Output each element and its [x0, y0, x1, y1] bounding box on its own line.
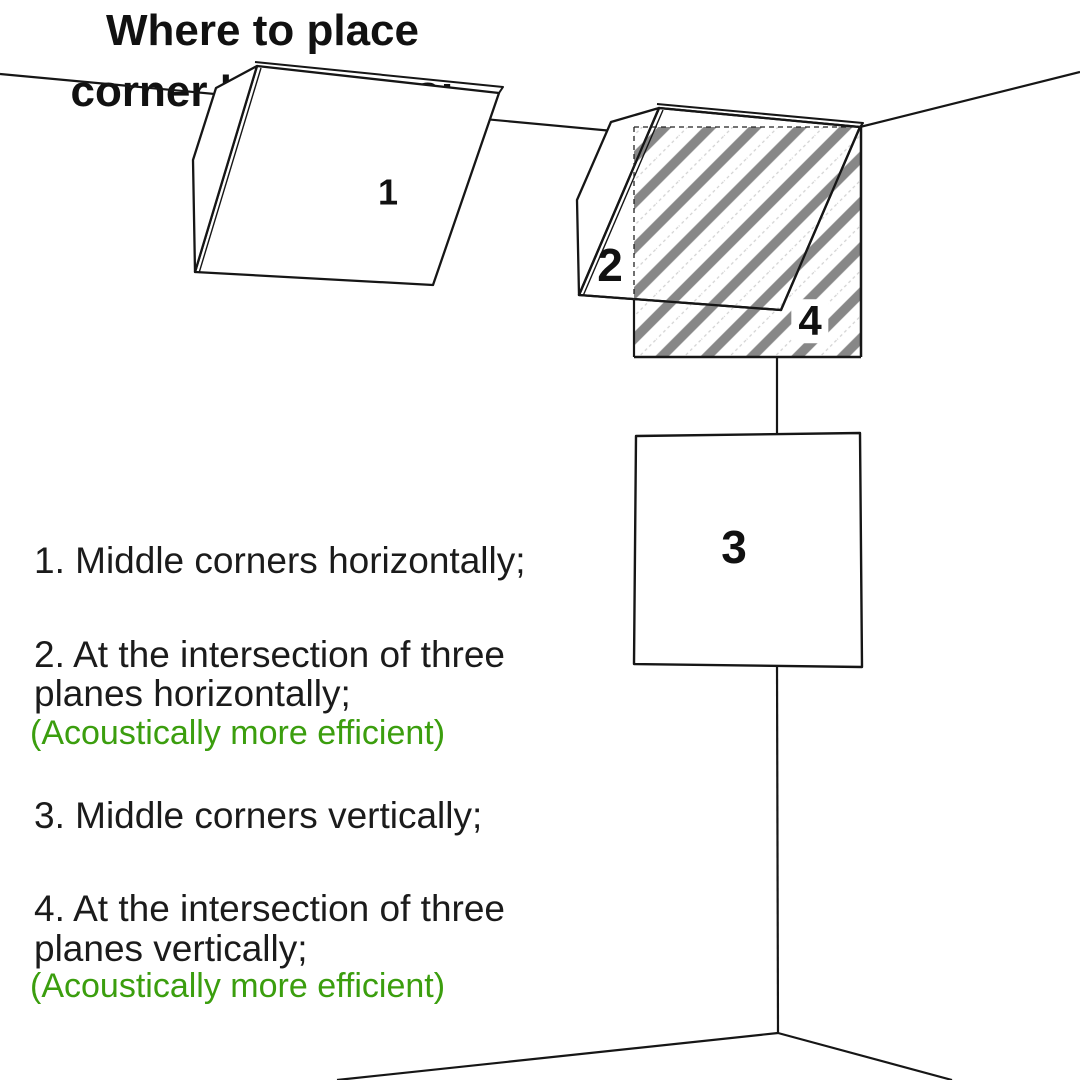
- floor-edge-left: [337, 1033, 778, 1080]
- list-item-4-line1: 4. At the intersection of three: [34, 890, 505, 927]
- list-item-4-line2: planes vertically;: [34, 930, 308, 967]
- trap3-square: [634, 433, 862, 667]
- ceiling-edge-right: [860, 72, 1080, 127]
- list-item-4-note: (Acoustically more efficient): [30, 969, 445, 1003]
- trap1-label: 1: [378, 175, 398, 211]
- list-item-1: 1. Middle corners horizontally;: [34, 542, 526, 579]
- wall-corner-lower-segment: [777, 664, 778, 1033]
- list-item-2-line1: 2. At the intersection of three: [34, 636, 505, 673]
- trap4-label: 4: [791, 299, 828, 343]
- infographic-canvas: 1 2 3 4 Where to place corner bass traps…: [0, 0, 1080, 1080]
- trap2-label: 2: [597, 242, 623, 288]
- list-item-3: 3. Middle corners vertically;: [34, 797, 482, 834]
- trap3-label: 3: [721, 524, 747, 570]
- list-item-2-note: (Acoustically more efficient): [30, 716, 445, 750]
- floor-edge-right: [778, 1033, 952, 1080]
- list-item-2-line2: planes horizontally;: [34, 675, 351, 712]
- bass-trap-1-shape: [193, 62, 503, 285]
